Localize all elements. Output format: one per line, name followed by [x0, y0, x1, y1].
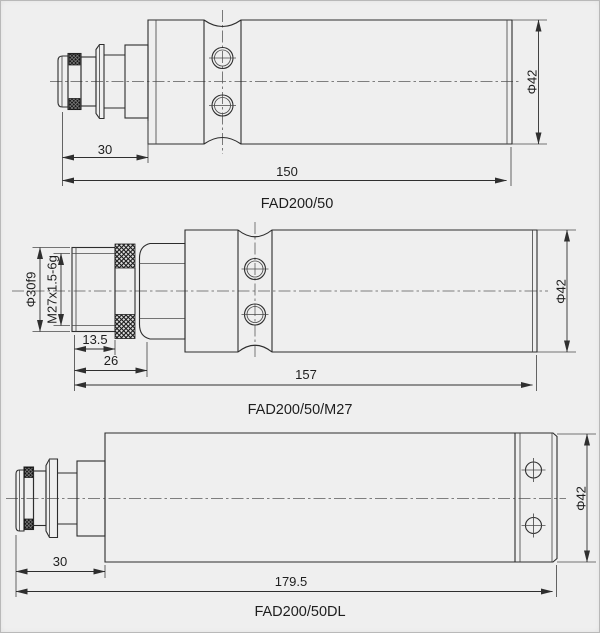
- dim-total-length-label: 157: [295, 367, 317, 382]
- body-cylinder: [148, 20, 512, 144]
- dim-thread-spec-label: M27x1.5-6g: [45, 255, 60, 324]
- dim-thread-od-label: Φ30f9: [24, 272, 39, 308]
- technical-drawing-sheet: Φ42 30 150 FAD200/50: [0, 0, 600, 633]
- dim-diameter-label: Φ42: [525, 70, 540, 95]
- thread-section: [72, 248, 115, 332]
- drawing-canvas: Φ42 30 150 FAD200/50: [0, 0, 600, 633]
- dim-front-length-label: 26: [104, 353, 118, 368]
- connector-tip: [16, 470, 24, 531]
- part-label: FAD200/50: [261, 196, 334, 212]
- o-ring-seal-top: [25, 468, 34, 478]
- fad200-50-m27-view: Φ42 Φ30f9 M27x1.5-6g 13.5 26 157 FAD200/…: [12, 222, 576, 418]
- o-ring-seal-top: [69, 54, 80, 65]
- fad200-50-view: Φ42 30 150 FAD200/50: [50, 10, 547, 212]
- body-cylinder: [105, 433, 557, 562]
- dim-total-length-label: 150: [276, 164, 298, 179]
- fad200-50-dl-view: Φ42 30 179.5 FAD200/50DL: [6, 433, 596, 620]
- dim-front-length-label: 30: [98, 142, 112, 157]
- dim-diameter-label: Φ42: [554, 279, 569, 304]
- dim-diameter-label: Φ42: [574, 486, 589, 511]
- dim-front-length-label: 30: [53, 554, 67, 569]
- seal-ring-bottom: [115, 315, 135, 339]
- part-label: FAD200/50DL: [254, 604, 345, 620]
- dim-thread-length-label: 13.5: [82, 332, 107, 347]
- o-ring-seal-bottom: [25, 519, 34, 529]
- o-ring-seal-bottom: [69, 99, 80, 110]
- dim-total-length-label: 179.5: [275, 574, 308, 589]
- seal-ring-top: [115, 244, 135, 268]
- part-label: FAD200/50/M27: [248, 402, 353, 418]
